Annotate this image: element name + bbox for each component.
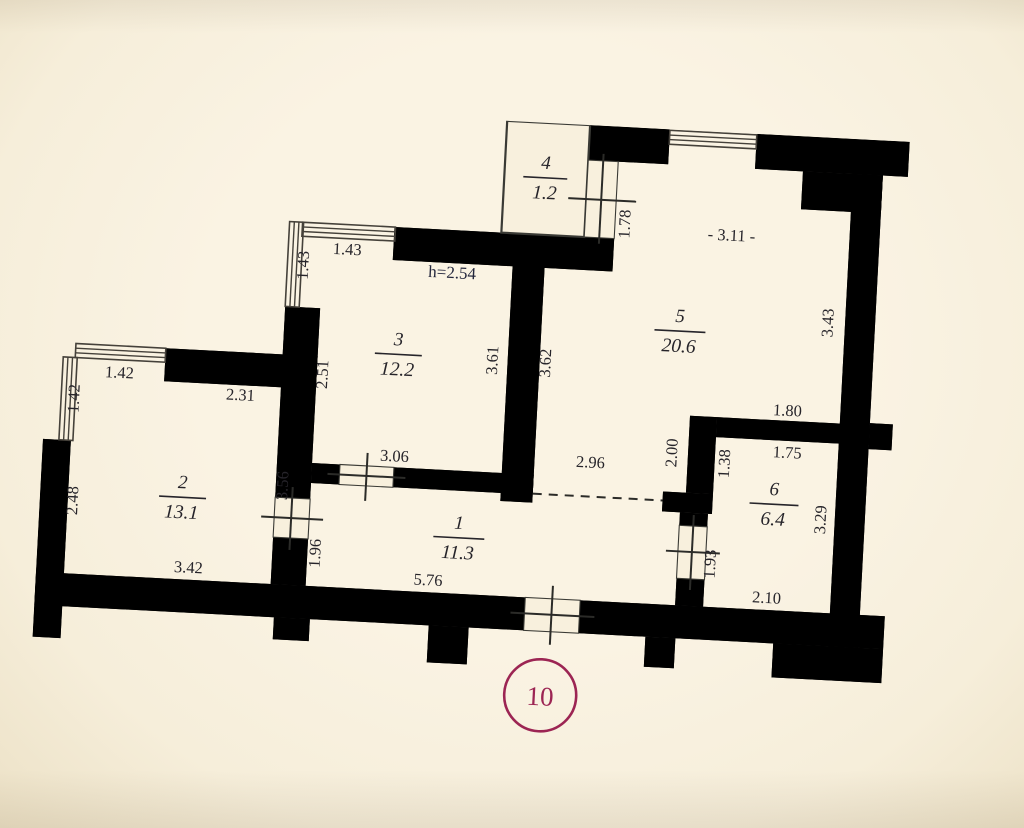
dim-room6-left: 1.93 [700,549,720,579]
dim-room2-top: 2.31 [226,384,256,404]
room-label-underline [654,330,705,333]
dim-room5-nook-wall: 2.00 [661,438,681,468]
room3-number: 3 [392,329,404,351]
room4-outline [501,121,590,237]
dim-room56-wall-top: 1.80 [773,400,803,420]
room5-area: 20.6 [661,335,696,358]
room5-label: 5 20.6 [653,305,707,359]
window-room3-top [302,222,396,241]
dim-room3-left: 2.51 [312,360,332,390]
floor-plan: 1.43 1.43 1.42 1.42 2.31 2.48 3.42 2.51 … [28,97,939,762]
dim-room5-left: 3.62 [535,348,555,378]
dim-room5-right: 3.43 [817,308,837,338]
dim-room2-left: 2.48 [62,486,82,516]
room1-number: 1 [454,513,465,534]
dim-room2-right: 3.56 [272,471,292,501]
floor-plan-svg: 1.43 1.43 1.42 1.42 2.31 2.48 3.42 2.51 … [28,97,939,762]
room3-area: 12.2 [379,358,414,381]
dim-room3-window-top: 1.43 [332,239,362,259]
room4-number: 4 [541,153,552,174]
room6-label: 6 6.4 [748,478,800,531]
photo-background: { "plan": { "unit_number": "10", "height… [0,0,1024,828]
dim-room1-bottom: 5.76 [413,570,443,590]
window-room5-top [669,130,757,149]
dim-room6-right: 3.29 [810,505,830,535]
dim-room6-bottom: 2.10 [752,587,782,607]
room2-area: 13.1 [164,501,199,524]
room-label-underline [159,496,206,498]
dim-room4-side: 1.78 [614,209,634,239]
room2-number: 2 [178,472,189,493]
dim-room6-wall-upper: 1.38 [714,449,734,479]
unit-number-badge: 10 [502,657,578,733]
room-label-underline [375,353,422,355]
dim-room2-window-side: 1.42 [63,384,83,414]
ceiling-height-note: h=2.54 [428,262,477,284]
dim-room3-window-side: 1.43 [293,250,313,280]
dim-room56-wall-bottom: 1.75 [772,442,802,462]
unit-number-text: 10 [526,681,555,712]
room1-area: 11.3 [441,542,475,565]
dim-room5-opening: 2.96 [576,452,606,472]
dim-room1-left: 1.96 [305,538,325,568]
room-label-underline [750,503,799,506]
dim-room2-window-top: 1.42 [105,362,135,382]
room5-number: 5 [675,306,686,327]
dim-room3-right: 3.61 [482,345,502,375]
room4-area: 1.2 [532,182,558,204]
dim-room2-bottom: 3.42 [173,557,203,577]
open-boundary-dashed-line [533,494,663,501]
room1-label: 1 11.3 [432,512,486,566]
room6-number: 6 [769,479,780,500]
room2-label: 2 13.1 [158,471,208,524]
window-room2-top [75,344,166,363]
dim-room5-top: - 3.11 - [707,224,755,245]
room6-area: 6.4 [760,509,786,531]
room3-label: 3 12.2 [374,328,424,381]
room-label-underline [433,536,484,539]
dim-room3-bottom: 3.06 [380,446,410,466]
